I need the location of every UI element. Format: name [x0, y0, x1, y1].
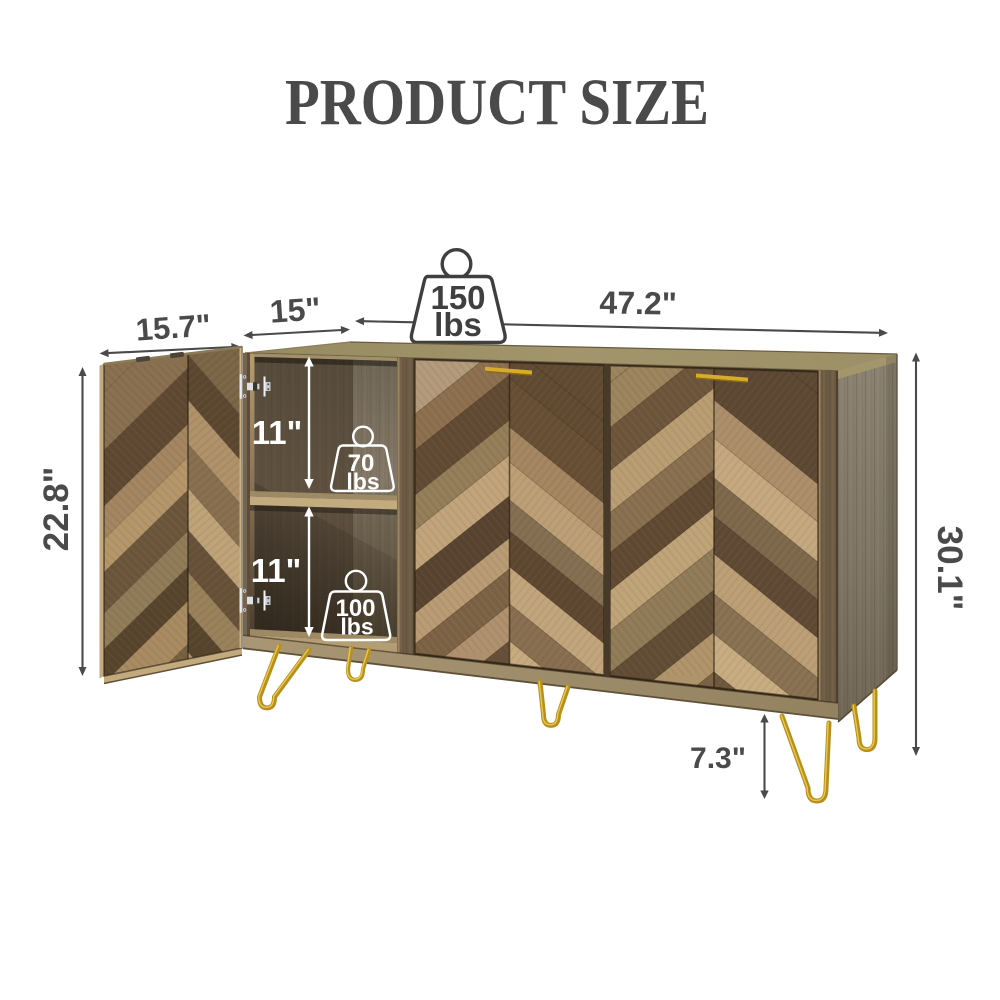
- svg-text:7.3": 7.3": [690, 742, 746, 775]
- svg-text:11": 11": [251, 552, 302, 589]
- svg-text:15": 15": [269, 290, 322, 329]
- svg-text:30.1": 30.1": [930, 526, 969, 611]
- svg-text:lbs: lbs: [346, 469, 379, 495]
- svg-text:11": 11": [252, 414, 303, 451]
- svg-text:PRODUCT SIZE: PRODUCT SIZE: [285, 66, 709, 139]
- svg-text:47.2": 47.2": [599, 284, 677, 321]
- svg-text:15.7": 15.7": [135, 307, 212, 347]
- svg-text:lbs: lbs: [340, 614, 373, 640]
- svg-text:22.8": 22.8": [37, 467, 76, 552]
- svg-text:lbs: lbs: [434, 306, 482, 343]
